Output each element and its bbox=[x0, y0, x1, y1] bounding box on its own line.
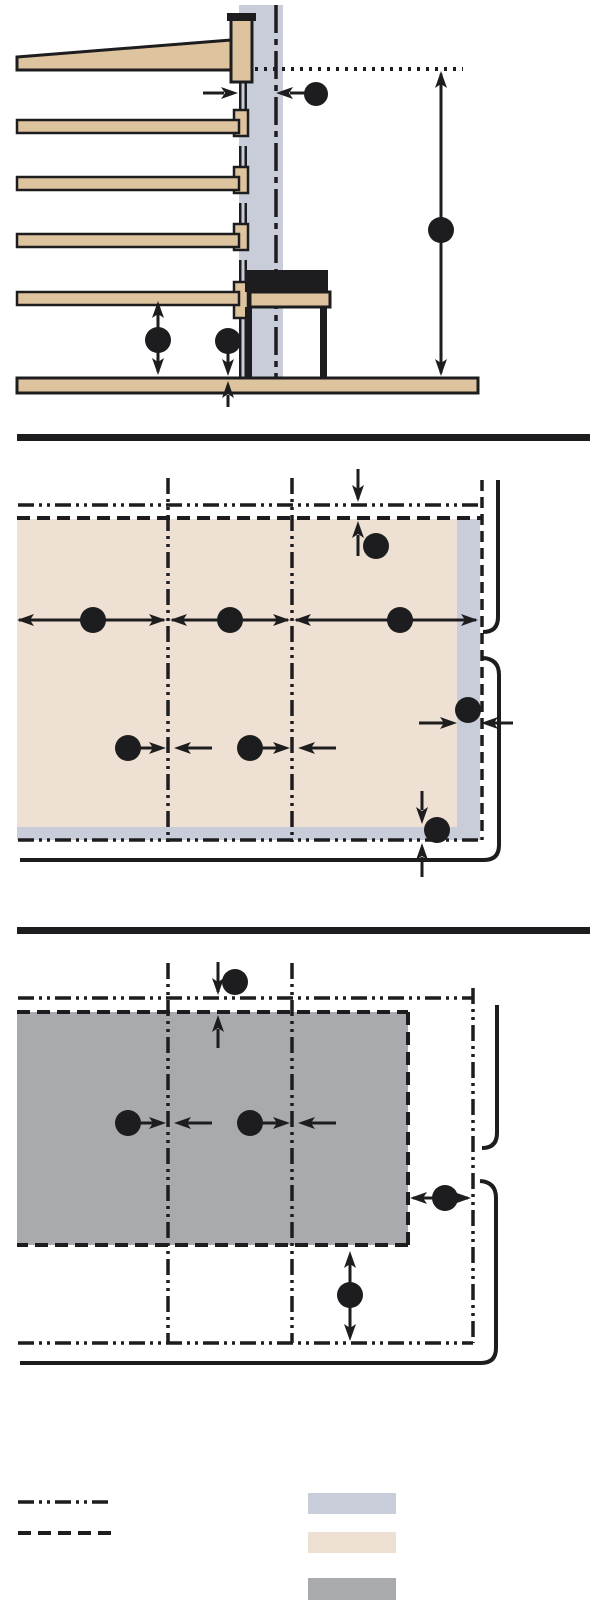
equipment-swatch bbox=[308, 1578, 396, 1600]
floor-slab bbox=[17, 177, 239, 190]
callout-marker bbox=[432, 1185, 458, 1211]
slab-plan-area bbox=[17, 519, 457, 827]
callout-marker bbox=[337, 1282, 363, 1308]
panel-divider bbox=[17, 434, 590, 441]
wall-plan-right bbox=[457, 519, 480, 840]
wall-break-bracket-upper bbox=[483, 480, 498, 632]
ground-slab bbox=[17, 378, 478, 393]
dim-bottom-clearance bbox=[337, 1251, 363, 1341]
equipment-zone-area bbox=[17, 1012, 408, 1245]
roof-upstand bbox=[231, 18, 252, 82]
dim-right-clearance bbox=[410, 1185, 471, 1211]
callout-marker bbox=[80, 607, 106, 633]
bench-leg bbox=[245, 307, 252, 378]
diagram-canvas bbox=[0, 0, 604, 1617]
dim-finish-level bbox=[215, 328, 241, 407]
callout-marker bbox=[428, 217, 454, 243]
wall-plan-bottom bbox=[17, 827, 480, 840]
floor-slabs bbox=[17, 110, 248, 318]
dim-top-gap bbox=[352, 469, 389, 559]
callout-marker bbox=[215, 328, 241, 354]
legend bbox=[18, 1493, 396, 1600]
interior-floor-strip bbox=[250, 292, 330, 307]
section-panel bbox=[17, 5, 478, 407]
floor-slab bbox=[17, 292, 239, 305]
panel-divider bbox=[17, 927, 590, 934]
floor-slab bbox=[17, 234, 239, 247]
roof-cap bbox=[227, 13, 256, 21]
callout-marker bbox=[217, 607, 243, 633]
wall-break-bracket-upper bbox=[482, 1005, 497, 1148]
floor-slab bbox=[17, 120, 239, 133]
callout-marker bbox=[424, 817, 450, 843]
roof-slab bbox=[17, 40, 231, 70]
callout-marker bbox=[455, 697, 481, 723]
diagram-page bbox=[0, 0, 604, 1617]
slab-swatch bbox=[308, 1532, 396, 1553]
callout-marker bbox=[145, 327, 171, 353]
plan-slab-panel bbox=[17, 469, 513, 877]
callout-marker bbox=[304, 82, 328, 106]
bench-leg bbox=[320, 307, 327, 378]
callout-marker bbox=[222, 969, 248, 995]
wall-swatch bbox=[308, 1493, 396, 1514]
callout-marker bbox=[363, 533, 389, 559]
callout-marker bbox=[387, 607, 413, 633]
dim-overall-height bbox=[428, 71, 454, 376]
bench-top bbox=[245, 270, 328, 292]
dim-clearance bbox=[145, 301, 171, 375]
plan-equipment-panel bbox=[17, 962, 497, 1363]
